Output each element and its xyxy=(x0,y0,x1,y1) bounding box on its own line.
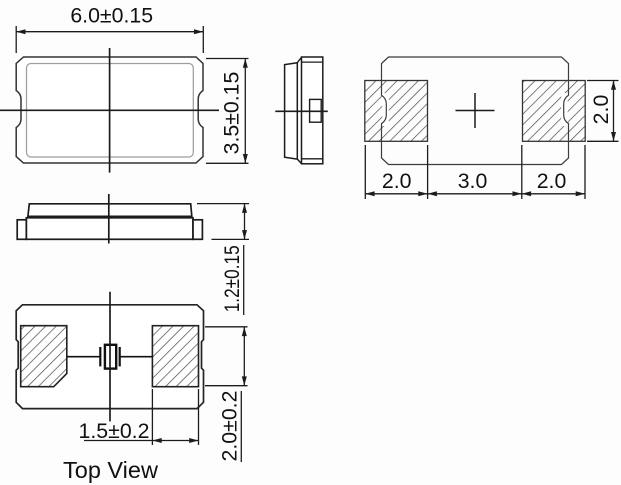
svg-text:2.0±0.2: 2.0±0.2 xyxy=(217,391,241,462)
svg-text:Top View: Top View xyxy=(63,457,159,483)
svg-text:2.0: 2.0 xyxy=(382,169,412,193)
svg-text:6.0±0.15: 6.0±0.15 xyxy=(70,3,153,27)
svg-text:1.5±0.2: 1.5±0.2 xyxy=(79,419,150,443)
svg-text:2.0: 2.0 xyxy=(537,169,567,193)
svg-text:3.5±0.15: 3.5±0.15 xyxy=(220,72,244,155)
svg-text:3.0: 3.0 xyxy=(458,169,488,193)
svg-text:2.0: 2.0 xyxy=(589,95,613,125)
svg-text:1.2±0.15: 1.2±0.15 xyxy=(220,245,244,312)
